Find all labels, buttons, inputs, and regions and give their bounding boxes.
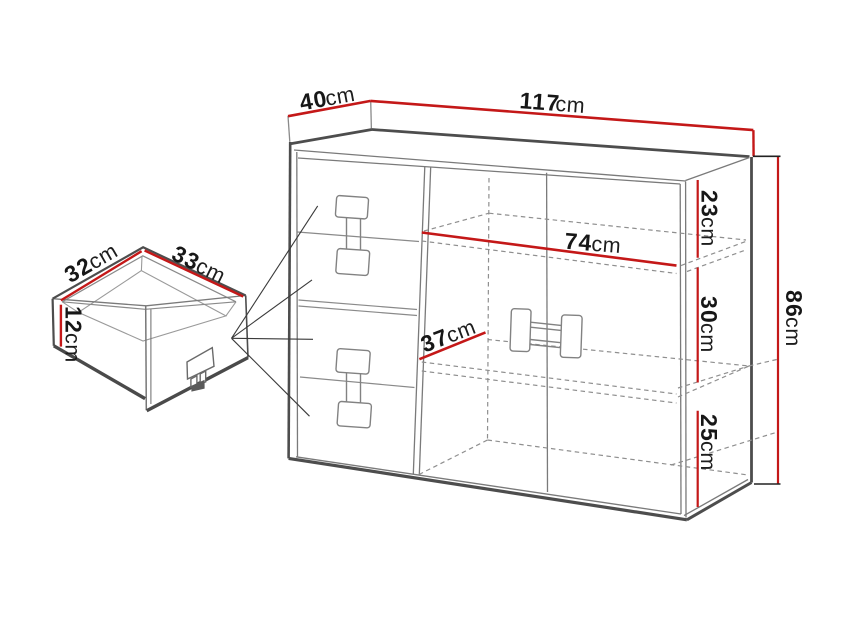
svg-text:cm: cm — [591, 232, 623, 258]
svg-text:cm: cm — [696, 323, 720, 353]
svg-text:12: 12 — [61, 306, 87, 334]
svg-text:cm: cm — [697, 217, 721, 247]
svg-text:cm: cm — [61, 333, 85, 363]
svg-text:cm: cm — [696, 441, 720, 471]
svg-text:25: 25 — [696, 414, 722, 442]
svg-text:23: 23 — [697, 190, 723, 218]
svg-text:86: 86 — [781, 290, 807, 318]
svg-text:74: 74 — [564, 228, 594, 256]
svg-text:cm: cm — [781, 317, 805, 347]
svg-text:30: 30 — [696, 296, 722, 324]
svg-text:cm: cm — [555, 92, 587, 118]
